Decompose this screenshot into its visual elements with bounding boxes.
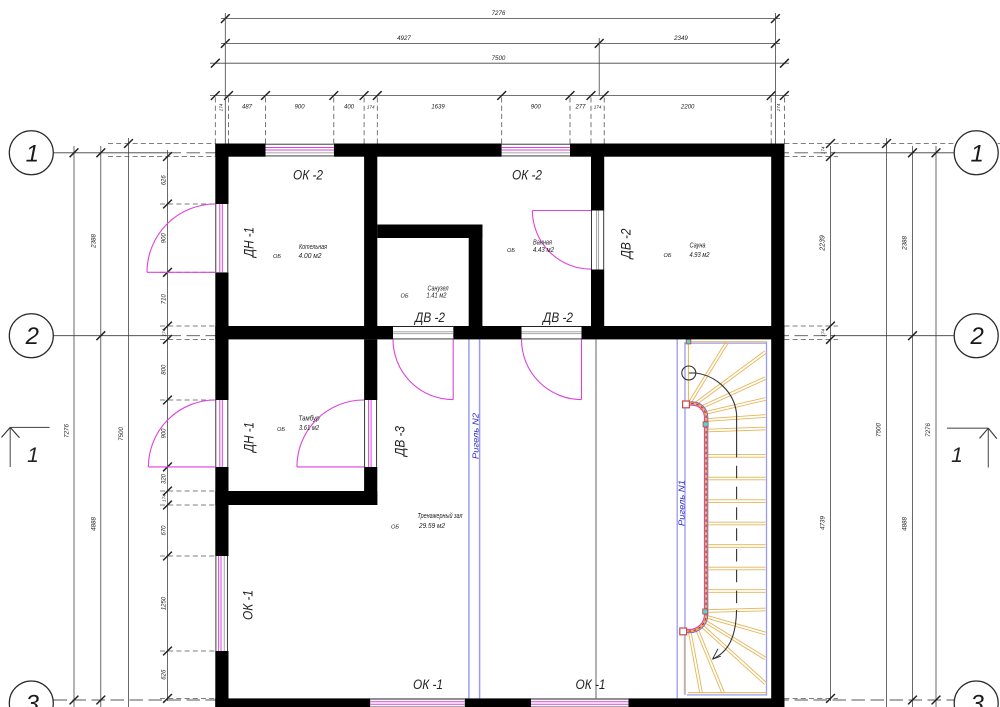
svg-text:ОК -1: ОК -1 [576, 676, 606, 692]
svg-text:400: 400 [344, 104, 355, 110]
svg-text:Ригель N1: Ригель N1 [677, 480, 687, 526]
svg-text:900: 900 [161, 233, 167, 244]
svg-text:2: 2 [25, 323, 39, 350]
svg-text:1: 1 [27, 444, 39, 467]
svg-text:Сауна: Сауна [690, 241, 706, 250]
svg-text:Ригель N2: Ригель N2 [471, 413, 481, 459]
svg-text:ДВ -2: ДВ -2 [541, 309, 573, 325]
svg-text:4888: 4888 [91, 517, 98, 531]
svg-text:2349: 2349 [673, 35, 688, 42]
svg-text:174: 174 [161, 494, 166, 502]
svg-text:2200: 2200 [680, 104, 695, 110]
svg-text:ОК -1: ОК -1 [413, 676, 443, 692]
svg-text:320: 320 [161, 473, 167, 484]
svg-text:670: 670 [161, 525, 167, 536]
svg-text:ДН -1: ДН -1 [241, 227, 257, 259]
svg-text:1: 1 [951, 444, 963, 467]
svg-text:1: 1 [26, 140, 39, 167]
svg-text:7500: 7500 [492, 55, 506, 62]
svg-text:2388: 2388 [902, 236, 909, 251]
svg-text:1: 1 [971, 140, 984, 167]
svg-text:626: 626 [161, 669, 167, 680]
svg-text:174: 174 [594, 104, 602, 109]
svg-text:800: 800 [161, 364, 167, 375]
svg-text:900: 900 [161, 428, 167, 439]
svg-text:277: 277 [574, 104, 586, 110]
svg-text:2388: 2388 [91, 234, 98, 249]
svg-text:ОБ: ОБ [507, 248, 516, 254]
svg-text:ДВ -3: ДВ -3 [392, 426, 408, 458]
svg-text:900: 900 [295, 104, 306, 110]
svg-text:4927: 4927 [397, 35, 411, 42]
svg-text:ДН -1: ДН -1 [241, 422, 257, 454]
svg-text:ОБ: ОБ [273, 254, 282, 260]
svg-text:4.43 м2: 4.43 м2 [533, 245, 554, 254]
svg-text:ДВ -2: ДВ -2 [618, 228, 634, 260]
svg-text:Тренажерный зал: Тренажерный зал [418, 511, 463, 520]
svg-text:174: 174 [821, 146, 826, 154]
svg-text:7500: 7500 [118, 427, 125, 441]
svg-text:1639: 1639 [431, 104, 445, 110]
svg-text:1250: 1250 [161, 596, 167, 610]
svg-text:7276: 7276 [925, 423, 932, 437]
svg-text:900: 900 [531, 104, 542, 110]
svg-text:174: 174 [821, 329, 826, 337]
svg-text:7500: 7500 [875, 423, 882, 437]
svg-text:4739: 4739 [820, 516, 827, 530]
svg-text:174: 174 [367, 104, 375, 109]
svg-text:ОК -2: ОК -2 [293, 167, 323, 183]
svg-text:29.59 м2: 29.59 м2 [418, 521, 445, 530]
svg-text:ОБ: ОБ [401, 294, 410, 300]
svg-text:7276: 7276 [492, 10, 506, 17]
svg-text:3.61 м2: 3.61 м2 [299, 423, 319, 432]
svg-text:ОК -1: ОК -1 [240, 590, 256, 620]
svg-text:3: 3 [971, 691, 985, 707]
svg-text:4.00 м2: 4.00 м2 [299, 251, 322, 260]
svg-text:174: 174 [776, 103, 781, 111]
svg-text:ДВ -2: ДВ -2 [413, 309, 445, 325]
svg-text:7276: 7276 [64, 424, 71, 438]
svg-text:2: 2 [970, 323, 984, 350]
svg-text:ОБ: ОБ [664, 253, 673, 259]
svg-text:3: 3 [26, 691, 40, 707]
svg-text:ОБ: ОБ [391, 525, 400, 531]
svg-text:626: 626 [161, 175, 167, 186]
svg-text:2239: 2239 [820, 235, 827, 252]
svg-text:ОБ: ОБ [277, 427, 286, 433]
svg-text:ОК -2: ОК -2 [512, 167, 542, 183]
svg-text:487: 487 [242, 104, 253, 110]
svg-text:710: 710 [161, 294, 167, 305]
svg-text:4.93 м2: 4.93 м2 [690, 250, 710, 259]
svg-text:174: 174 [161, 328, 166, 336]
svg-text:1.41 м2: 1.41 м2 [427, 291, 447, 300]
svg-text:Тамбур: Тамбур [299, 414, 320, 423]
svg-text:174: 174 [219, 103, 224, 111]
svg-text:Котельная: Котельная [299, 242, 327, 251]
svg-text:4888: 4888 [902, 517, 909, 531]
